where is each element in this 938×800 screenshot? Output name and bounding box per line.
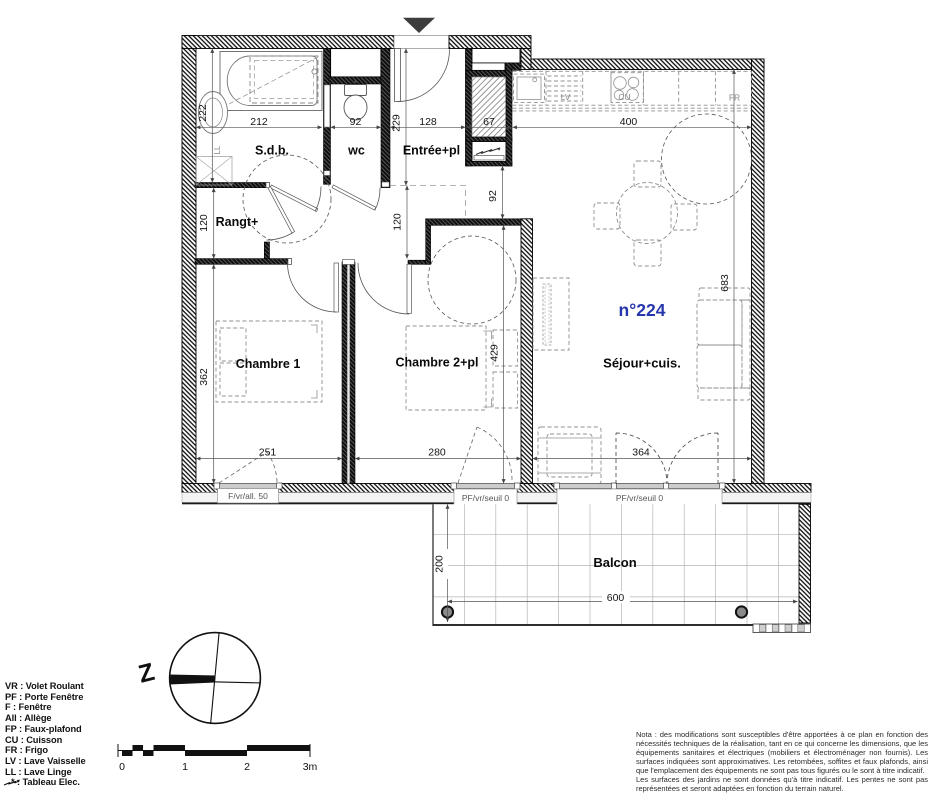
svg-text:362: 362 [198,368,210,386]
svg-text:Rangt+: Rangt+ [216,215,259,229]
svg-text:67: 67 [483,116,495,128]
svg-text:280: 280 [428,447,446,459]
svg-text:Chambre 1: Chambre 1 [236,357,301,371]
svg-text:251: 251 [259,447,277,459]
svg-text:0: 0 [119,761,125,773]
svg-text:1: 1 [182,761,188,773]
svg-text:400: 400 [620,116,638,128]
svg-text:120: 120 [392,213,404,231]
svg-text:Séjour+cuis.: Séjour+cuis. [603,356,681,371]
svg-text:3m: 3m [303,761,318,773]
svg-text:PF/vr/seuil 0: PF/vr/seuil 0 [462,493,510,503]
svg-text:222: 222 [197,104,209,122]
svg-text:600: 600 [607,592,625,604]
svg-text:wc: wc [347,144,365,158]
svg-text:683: 683 [719,274,731,292]
svg-text:S.d.b.: S.d.b. [255,144,289,158]
svg-text:Z: Z [136,658,158,689]
svg-text:200: 200 [434,555,446,573]
svg-text:CU: CU [618,92,630,102]
svg-text:92: 92 [487,190,499,202]
svg-text:LV: LV [561,92,571,102]
svg-text:92: 92 [350,116,362,128]
svg-text:F/vr/all. 50: F/vr/all. 50 [228,491,268,501]
svg-text:212: 212 [250,116,268,128]
svg-text:Chambre 2+pl: Chambre 2+pl [395,356,478,370]
svg-text:n°224: n°224 [619,300,666,320]
svg-text:Entrée+pl: Entrée+pl [403,144,460,158]
svg-text:364: 364 [632,447,650,459]
svg-text:Balcon: Balcon [593,555,636,570]
svg-text:FR: FR [729,93,740,103]
svg-text:229: 229 [391,114,403,132]
svg-text:LL: LL [213,145,222,154]
svg-text:PF/vr/seuil 0: PF/vr/seuil 0 [616,493,664,503]
svg-text:128: 128 [419,116,437,128]
svg-text:429: 429 [489,344,501,362]
svg-text:120: 120 [198,214,210,232]
svg-text:2: 2 [244,761,250,773]
